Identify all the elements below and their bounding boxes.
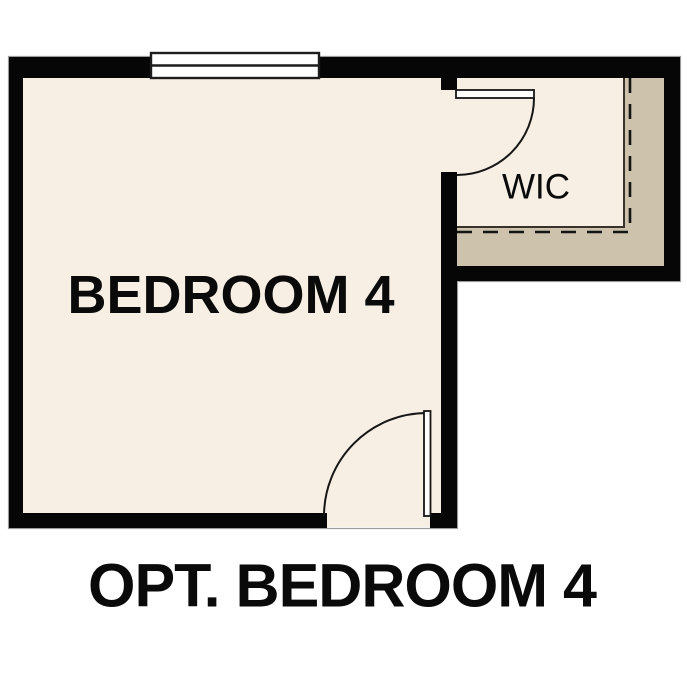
- bedroom-door-opening-floor: [327, 513, 430, 527]
- window: [151, 53, 319, 78]
- bedroom-label: BEDROOM 4: [67, 268, 394, 322]
- wall-outer-right: [664, 57, 680, 281]
- wall-bedroom-right-upper-stub: [441, 57, 457, 90]
- bedroom-door-leaf: [424, 411, 431, 516]
- wall-wic-bottom: [441, 266, 680, 281]
- wall-left: [9, 57, 23, 528]
- wall-bottom-left-run: [9, 513, 327, 528]
- floor-plan-page: BEDROOM 4 WIC OPT. BEDROOM 4: [0, 0, 687, 687]
- wic-door-leaf: [456, 90, 534, 98]
- wic-label: WIC: [502, 170, 570, 205]
- wall-top: [9, 57, 680, 78]
- plan-caption: OPT. BEDROOM 4: [88, 556, 596, 617]
- wic-door-opening-floor: [441, 90, 457, 172]
- wall-bedroom-right-lower: [441, 172, 457, 528]
